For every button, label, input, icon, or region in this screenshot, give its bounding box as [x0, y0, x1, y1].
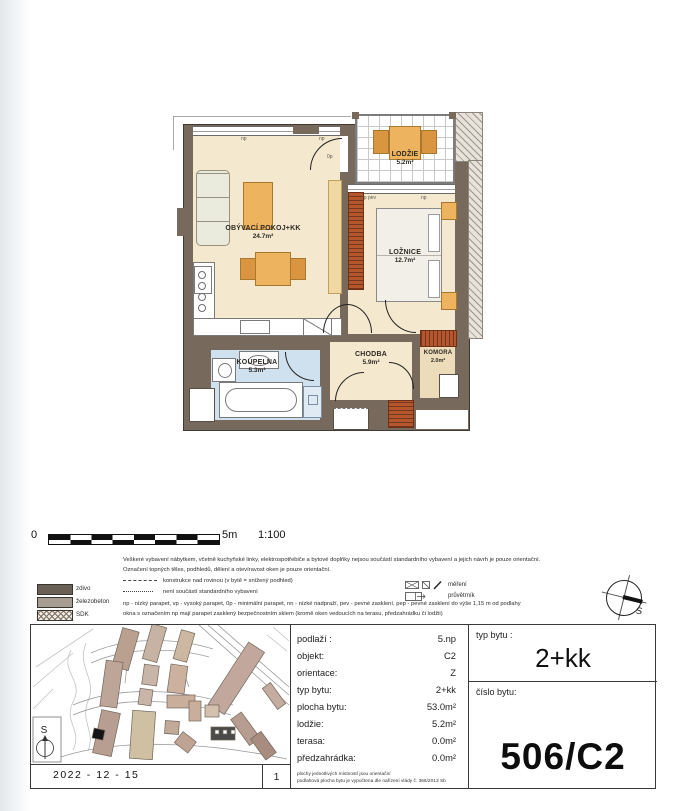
- scale-ratio: 1:100: [258, 529, 286, 541]
- parapet-label: np: [421, 195, 427, 201]
- svg-text:S: S: [41, 725, 48, 736]
- wardrobe-strip-bedroom: [348, 192, 364, 290]
- sink: [240, 320, 270, 334]
- bathtub: [219, 382, 303, 418]
- wall-pier: [177, 208, 185, 236]
- chair: [290, 258, 306, 280]
- site-map: S: [31, 625, 290, 763]
- parapet-label: np: [319, 136, 325, 142]
- unit-number-label: číslo bytu:: [476, 687, 517, 697]
- swatch-label: železobeton: [76, 598, 109, 605]
- shaft-box: [439, 374, 459, 398]
- chair: [240, 258, 256, 280]
- swatch-masonry: [37, 584, 73, 595]
- exterior-line: [173, 116, 351, 117]
- north-compass: S: [603, 577, 645, 619]
- dashed-line-symbol: [123, 580, 157, 581]
- spec-row-objekt: objekt:C2: [291, 647, 468, 664]
- floor-plan: np np 0p np pev np OBÝVACÍ POKOJ+KK 24.7…: [183, 112, 483, 442]
- exterior-line: [173, 116, 174, 150]
- spec-row-plocha: plocha bytu:53.0m²: [291, 698, 468, 715]
- swatch-label: zdivo: [76, 585, 90, 592]
- spec-row-podlazi: podlaží :5.np: [291, 630, 468, 647]
- loggia-post: [449, 112, 456, 119]
- room-label-hallway: CHODBA 5.9m²: [333, 350, 409, 368]
- nightstand: [441, 202, 457, 220]
- parapet-label: np pev: [361, 195, 376, 201]
- spec-row-typ-bytu: typ bytu:2+kk: [291, 681, 468, 698]
- vent-icon: [405, 592, 427, 601]
- entrance-recess: [333, 408, 369, 430]
- dotted-line-symbol: [123, 591, 153, 592]
- room-label-loggia: LODŽIE 5.2m²: [367, 150, 443, 168]
- scale-zero: 0: [31, 529, 37, 541]
- room-label-living: OBÝVACÍ POKOJ+KK 24.7m²: [201, 224, 325, 242]
- washing-machine: [303, 386, 322, 418]
- stove: [194, 266, 212, 294]
- shelf-strip-hallway: [388, 400, 414, 428]
- map-compass: S: [33, 717, 61, 762]
- unit-type-cell: typ bytu : 2+kk: [469, 625, 657, 682]
- fine-print: plochy jednotlivých místností jsou orien…: [297, 771, 446, 785]
- spec-row-lodzie: lodžie:5.2m²: [291, 715, 468, 732]
- spec-row-orientace: orientace:Z: [291, 664, 468, 681]
- spec-row-terasa: terasa:0.0m²: [291, 732, 468, 749]
- compass-north-label: S: [636, 606, 642, 616]
- dining-table: [255, 252, 291, 286]
- legend-note-dashed: konstrukce nad rovinou (v bytě = snížený…: [123, 578, 293, 584]
- legend-note: np - nízký parapet, vp - vysoký parapet,…: [123, 601, 521, 607]
- nightstand: [441, 292, 457, 310]
- scan-edge-shadow: [0, 0, 30, 811]
- room-label-bedroom: LOŽNICE 12.7m²: [369, 248, 441, 266]
- parapet-label: 0p: [327, 154, 333, 160]
- spec-row-predzahradka: předzahrádka:0.0m²: [291, 749, 468, 766]
- legend-note: okna s označením np mají parapet zasklen…: [123, 611, 443, 617]
- pillow: [428, 214, 440, 252]
- wardrobe-living: [328, 180, 342, 294]
- pillow: [428, 260, 440, 298]
- symbol-label: měření: [448, 582, 467, 588]
- loggia-post: [352, 112, 359, 119]
- neighbor-wall-hatch: [455, 112, 483, 162]
- shelf-strip-storage: [420, 330, 457, 347]
- neighbor-wall-strip: [468, 160, 483, 339]
- site-map-cell: S 2022 - 12 - 15 1: [31, 625, 291, 788]
- window-band-bedroom: [348, 184, 455, 194]
- unit-type-value: 2+kk: [469, 643, 657, 674]
- room-label-storage: KOMORA 2.0m²: [413, 350, 463, 365]
- parapet-label: np: [241, 136, 247, 142]
- date-row: 2022 - 12 - 15 1: [31, 764, 290, 788]
- measurement-icons: [405, 581, 443, 590]
- legend-note-dotted: není součástí standardního vybavení: [123, 589, 258, 595]
- coffee-table: [243, 182, 273, 230]
- scale-bar: [48, 534, 220, 545]
- swatch-concrete: [37, 597, 73, 608]
- window-pier: [293, 126, 319, 134]
- unit-number-value: 506/C2: [469, 736, 657, 778]
- symbol-label: průvětrník: [448, 593, 475, 599]
- swatch-drywall: [37, 610, 73, 621]
- unit-number-cell: číslo bytu: 506/C2: [469, 682, 657, 788]
- title-block: S 2022 - 12 - 15 1 podlaží :5.np objekt:…: [30, 624, 656, 789]
- room-label-bathroom: KOUPELNA 5.3m²: [221, 358, 293, 376]
- plan-date: 2022 - 12 - 15: [53, 769, 139, 781]
- exterior-notch: [416, 410, 468, 429]
- unit-type-label: typ bytu :: [476, 630, 513, 640]
- legend-note: Veškeré vybavení nábytkem, včetně kuchyň…: [123, 557, 540, 563]
- spec-rows: podlaží :5.np objekt:C2 orientace:Z typ …: [291, 630, 468, 766]
- page-number: 1: [262, 765, 290, 788]
- site-map-drawing: S: [31, 625, 289, 763]
- floorplan-sheet: np np 0p np pev np OBÝVACÍ POKOJ+KK 24.7…: [0, 0, 686, 811]
- specs-cell: podlaží :5.np objekt:C2 orientace:Z typ …: [291, 625, 469, 788]
- bathtub-inner: [225, 388, 297, 412]
- legend-note: Označení topných těles, podhledů, dělení…: [123, 567, 331, 573]
- swatch-label: SDK: [76, 611, 89, 618]
- unit-cell: typ bytu : 2+kk číslo bytu: 506/C2: [469, 625, 657, 788]
- scale-five-meters: 5m: [222, 529, 237, 541]
- shaft-box: [189, 388, 215, 422]
